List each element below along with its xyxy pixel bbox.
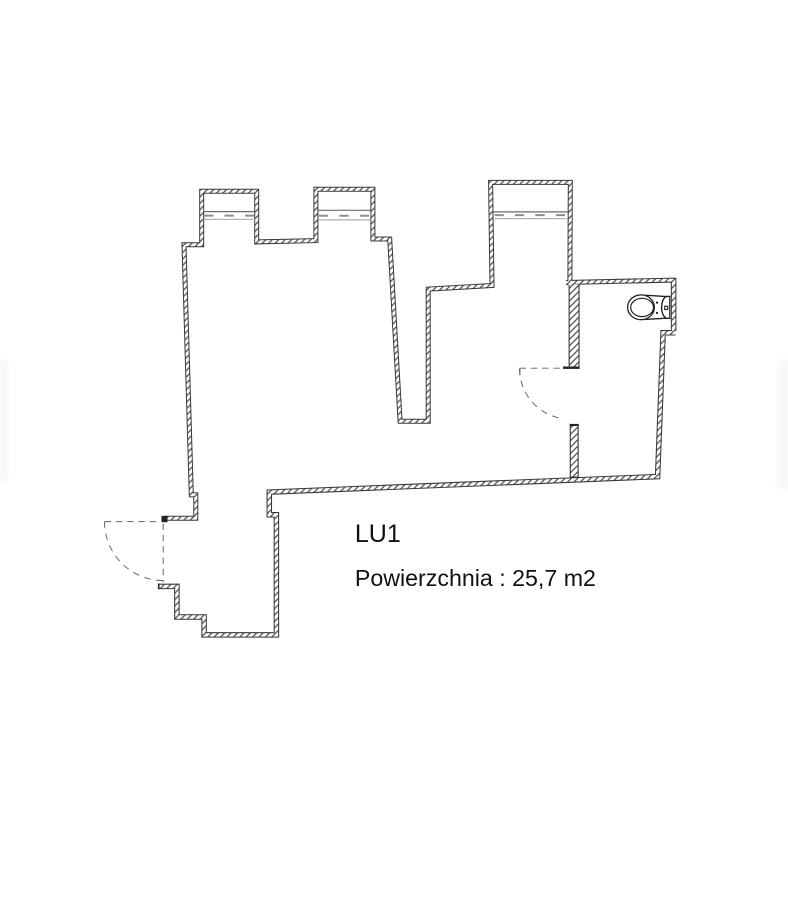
svg-text:LU1: LU1 <box>355 520 401 548</box>
svg-text:Powierzchnia : 25,7 m2: Powierzchnia : 25,7 m2 <box>355 565 596 591</box>
